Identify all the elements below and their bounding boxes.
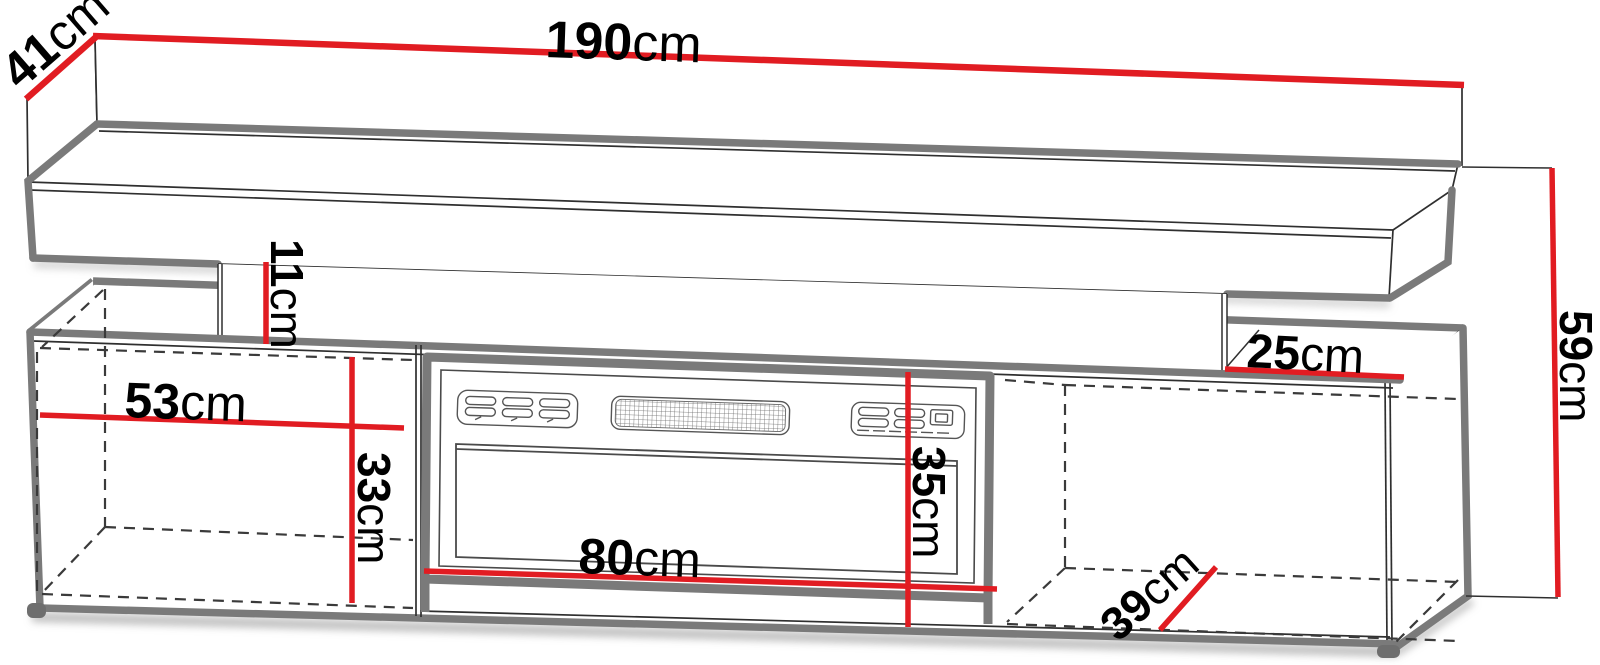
dim-label-80: 80cm [578,528,702,588]
diagram-canvas: 190cm 41cm 11cm 53cm 33cm 80cm 35cm 25cm… [0,0,1600,665]
dim-label-11: 11cm [261,239,313,349]
dim-label-33: 33cm [348,452,400,565]
cabinet-foot-right [1377,645,1400,658]
dimension-ticks [1462,167,1558,598]
dim-label-59: 59cm [1550,310,1600,423]
dim-label-190: 190cm [545,11,703,74]
dim-label-25: 25cm [1245,325,1365,384]
dim-label-53: 53cm [124,372,248,432]
dim-label-35: 35cm [903,446,955,559]
vent-middle-icon [611,396,790,435]
vent-left-icon [457,390,578,428]
cabinet-foot-left [27,603,46,618]
furniture-dimension-diagram: 190cm 41cm 11cm 53cm 33cm 80cm 35cm 25cm… [0,0,1600,665]
